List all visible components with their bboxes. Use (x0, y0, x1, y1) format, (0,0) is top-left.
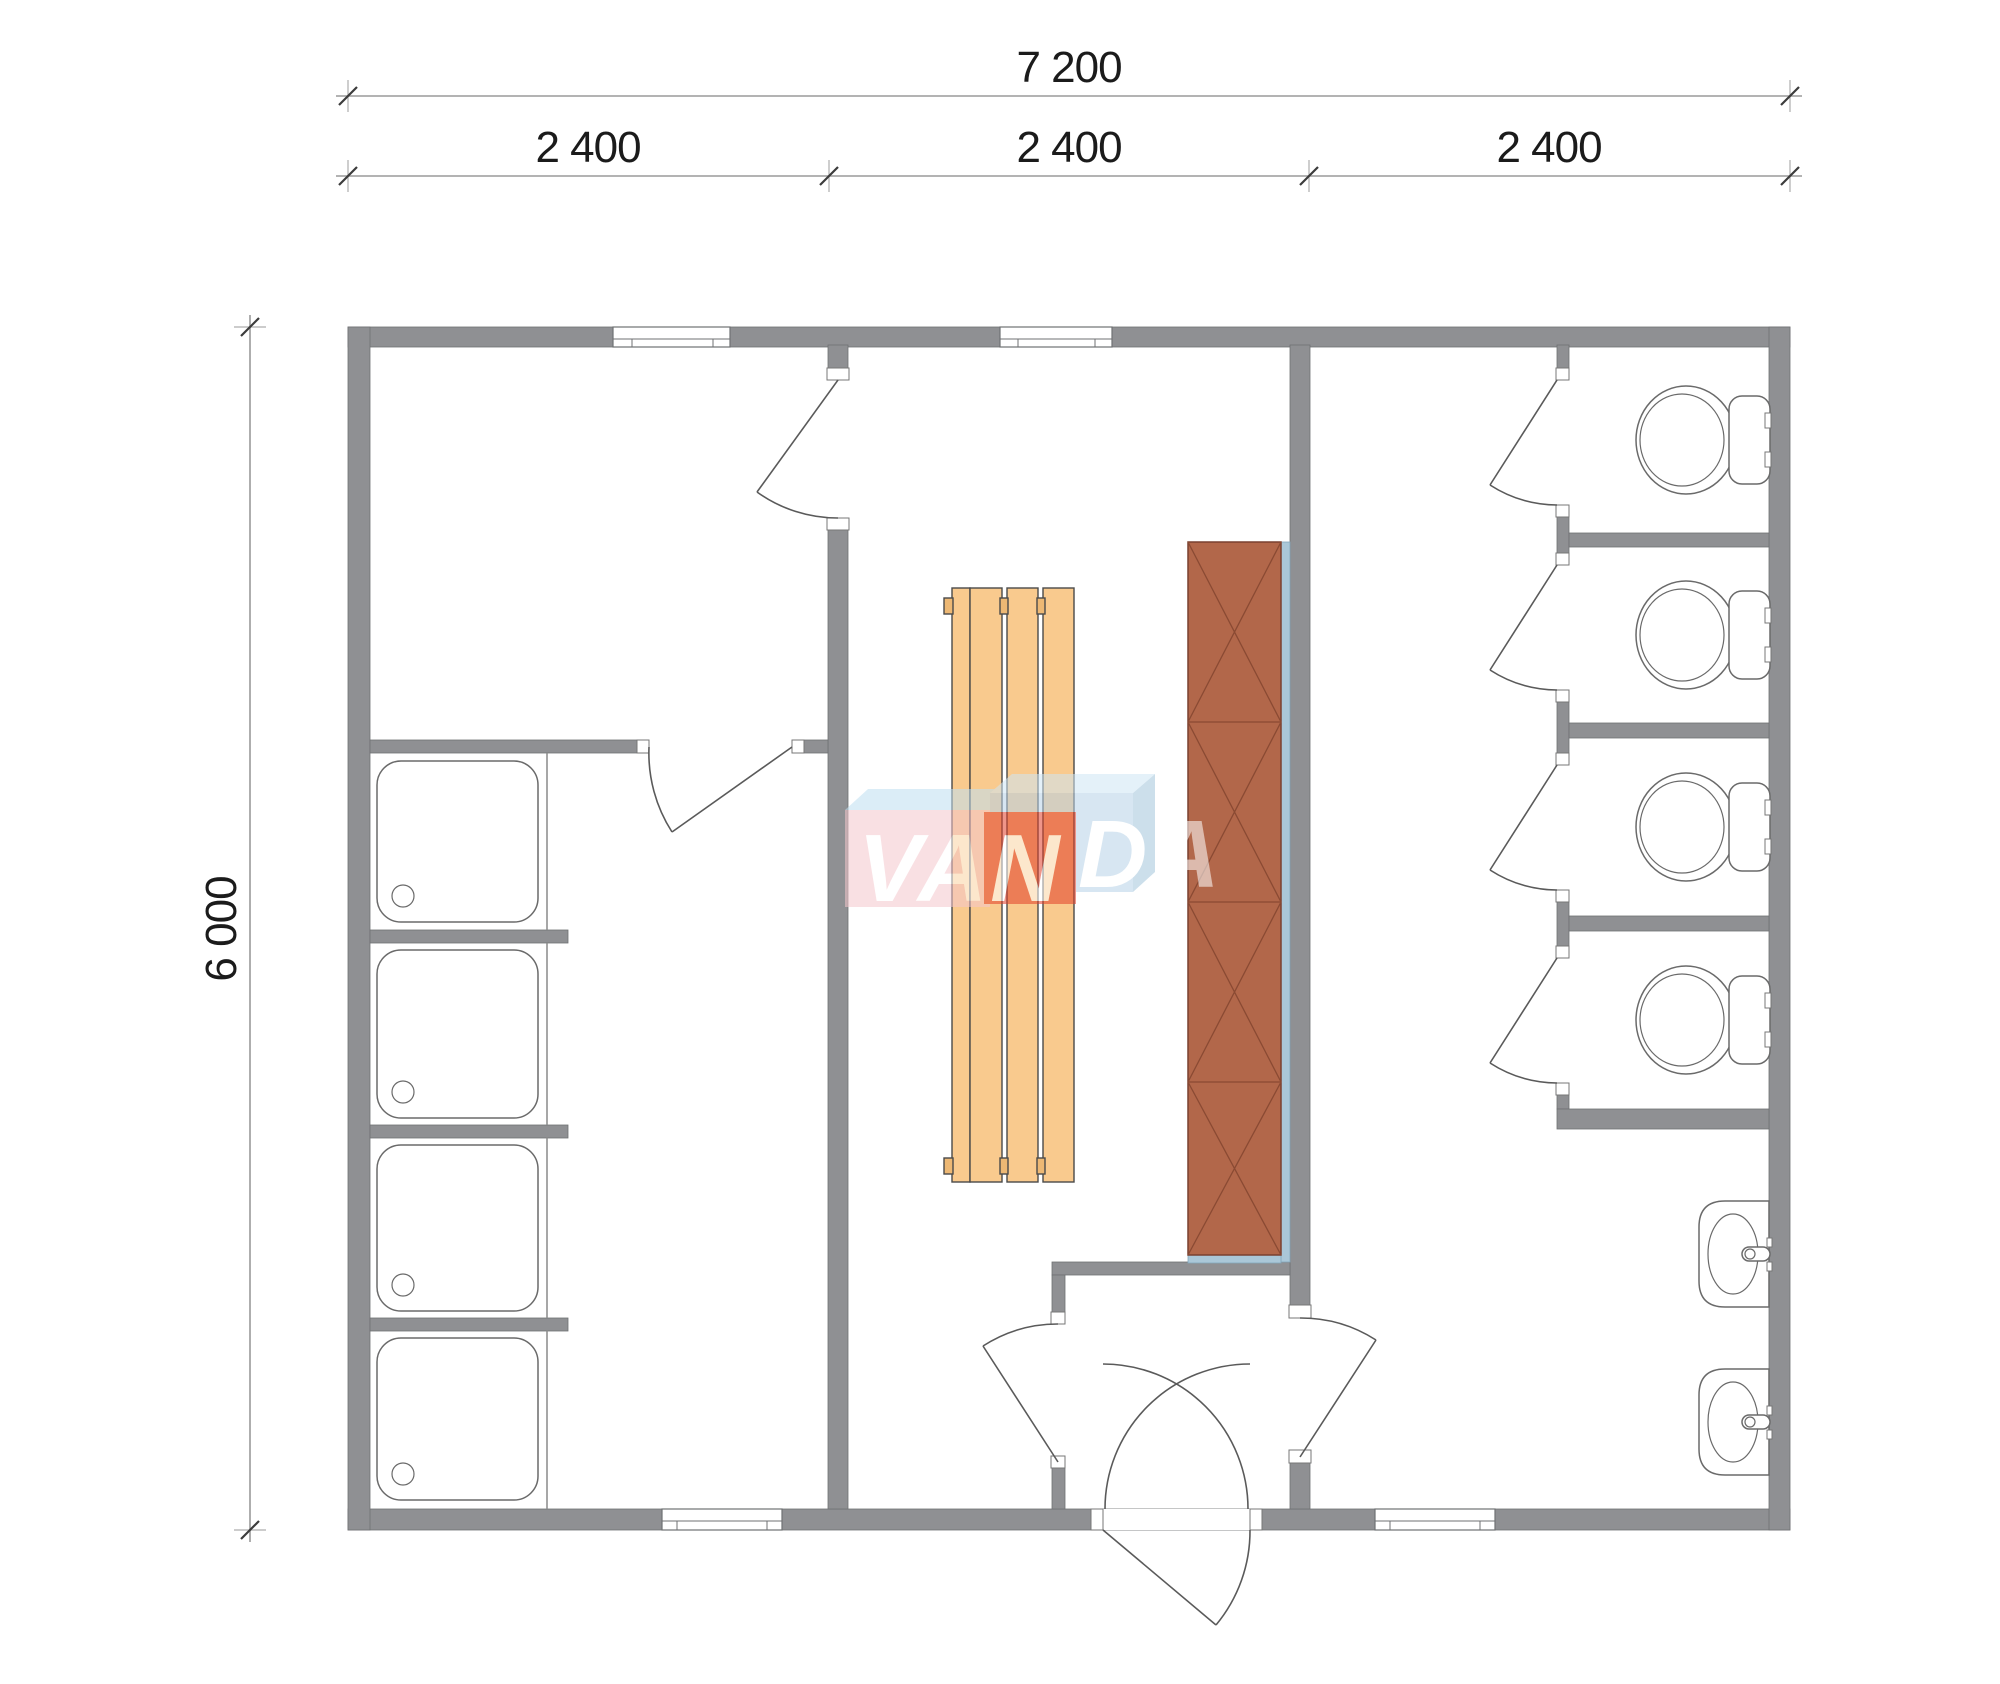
sink-1 (1699, 1201, 1772, 1307)
door-toilet-stall-2 (1490, 565, 1557, 690)
logo-left-top-face (845, 789, 1013, 810)
door-room1-to-middle (757, 380, 838, 518)
wall-shower-room-divider-stub (804, 740, 828, 753)
dimension-label-bay-2: 2 400 (1016, 123, 1121, 172)
shower-tray-1 (377, 761, 538, 922)
insulation-strip-vertical (1281, 542, 1290, 1262)
dimension-left-overall: 6 000 (197, 315, 266, 1542)
door-toilet-stall-4 (1490, 958, 1557, 1083)
window-top-middle (1000, 327, 1112, 347)
dimension-label-overall-width: 7 200 (1016, 43, 1121, 92)
toilet-4 (1636, 966, 1771, 1074)
wall-partition-right-stub (1290, 1463, 1310, 1509)
window-bottom-left (662, 1509, 782, 1530)
shower-tray-2 (377, 950, 538, 1118)
dimension-top-overall: 7 200 (336, 43, 1802, 112)
wall-exterior-left (348, 327, 370, 1530)
door-entrance-double (1103, 1364, 1250, 1625)
vanda-logo: VAN DA (845, 774, 1223, 922)
shower-tray-4 (377, 1338, 538, 1500)
door-toilet-stall-1 (1490, 380, 1557, 505)
doors (649, 380, 1557, 1625)
window-top-left (613, 327, 730, 347)
dimension-top-bays: 2 400 2 400 2 400 (336, 123, 1802, 192)
toilet-2 (1636, 581, 1771, 689)
wall-stall-partition-3 (1569, 916, 1769, 931)
wall-stall-partition-1 (1569, 533, 1769, 547)
shower-tray-3 (377, 1145, 538, 1311)
floor-plan-page: 7 200 2 400 2 400 2 400 6 000 (0, 0, 2000, 1684)
door-vestibule-to-middle (983, 1324, 1058, 1462)
wall-exterior-bottom (348, 1509, 1790, 1530)
wall-vestibule-west-bottom (1052, 1468, 1065, 1509)
wall-vestibule-west-top (1052, 1275, 1065, 1312)
toilet-1 (1636, 386, 1771, 494)
wall-shower-partition-2 (370, 1125, 568, 1138)
wall-stall-bottom (1557, 1109, 1769, 1129)
dimension-label-bay-1: 2 400 (535, 123, 640, 172)
insulation-strip-horizontal (1188, 1255, 1281, 1263)
wall-exterior-right (1769, 327, 1790, 1530)
floor-plan-canvas: 7 200 2 400 2 400 2 400 6 000 (0, 0, 2000, 1684)
wall-stall-partition-2 (1569, 723, 1769, 738)
wall-shower-room-divider (370, 740, 637, 753)
door-openings (637, 368, 1571, 1530)
toilet-3 (1636, 773, 1771, 881)
sinks (1699, 1201, 1772, 1475)
sink-2 (1699, 1369, 1772, 1475)
door-room1-to-shower-area (649, 747, 792, 832)
dimension-label-bay-3: 2 400 (1496, 123, 1601, 172)
wall-partition-right (1290, 345, 1310, 1308)
logo-text-left: VAN (858, 815, 1063, 922)
wall-vestibule-north (1052, 1262, 1290, 1275)
window-bottom-right (1375, 1509, 1495, 1530)
logo-right-top-face (990, 774, 1155, 793)
logo-text-right: DA (1078, 801, 1223, 908)
wall-shower-partition-3 (370, 1318, 568, 1331)
wall-shower-partition-1 (370, 930, 568, 943)
dimension-label-overall-height: 6 000 (197, 876, 246, 981)
door-toilet-stall-3 (1490, 765, 1557, 890)
